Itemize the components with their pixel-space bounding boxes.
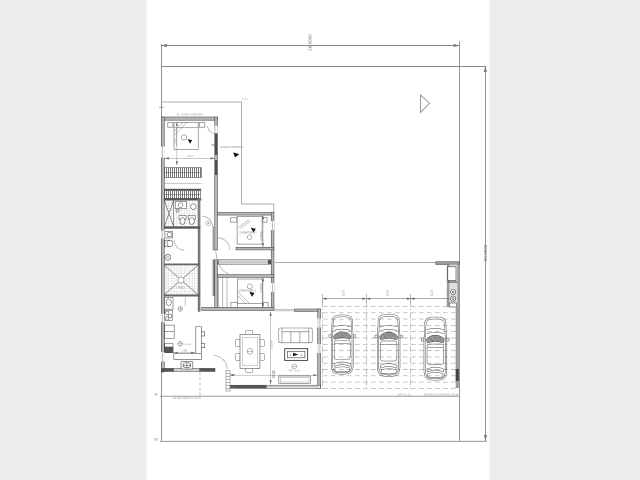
svg-text:NPT +0.10: NPT +0.10 <box>398 392 411 396</box>
svg-text:ACCESO PRINCIPAL: ACCESO PRINCIPAL <box>220 146 244 149</box>
svg-text:RETIRO FRONTAL 5.00 M: RETIRO FRONTAL 5.00 M <box>173 397 201 400</box>
svg-text:S=260: S=260 <box>242 99 249 101</box>
svg-text:3.0000: 3.0000 <box>259 231 263 241</box>
svg-text:DORMITORIO 2: DORMITORIO 2 <box>240 232 258 234</box>
svg-text:PL. DORM. PRINCIPAL: PL. DORM. PRINCIPAL <box>177 113 204 116</box>
svg-text:26.0000: 26.0000 <box>483 244 488 261</box>
svg-text:PATIO: PATIO <box>178 287 185 290</box>
svg-text:15'-0": 15'-0" <box>187 154 194 158</box>
svg-text:2.80: 2.80 <box>182 349 188 353</box>
svg-text:DORMITORIO 3: DORMITORIO 3 <box>239 291 257 293</box>
svg-text:3.00: 3.00 <box>430 290 434 297</box>
svg-text:3.9000: 3.9000 <box>269 340 273 350</box>
svg-text:3.0000: 3.0000 <box>259 283 263 293</box>
svg-text:3.00: 3.00 <box>341 290 345 297</box>
svg-text:3.50: 3.50 <box>174 138 177 143</box>
svg-text:RETIRO POSTERIOR 3.00 M: RETIRO POSTERIOR 3.00 M <box>424 393 458 397</box>
svg-text:COCINA: COCINA <box>182 343 191 346</box>
svg-text:38': 38' <box>154 392 159 396</box>
svg-text:38': 38' <box>154 438 159 442</box>
svg-text:3.00: 3.00 <box>386 290 390 297</box>
svg-text:26.0000: 26.0000 <box>308 34 313 51</box>
svg-text:NPT +0.15: NPT +0.15 <box>289 371 301 373</box>
